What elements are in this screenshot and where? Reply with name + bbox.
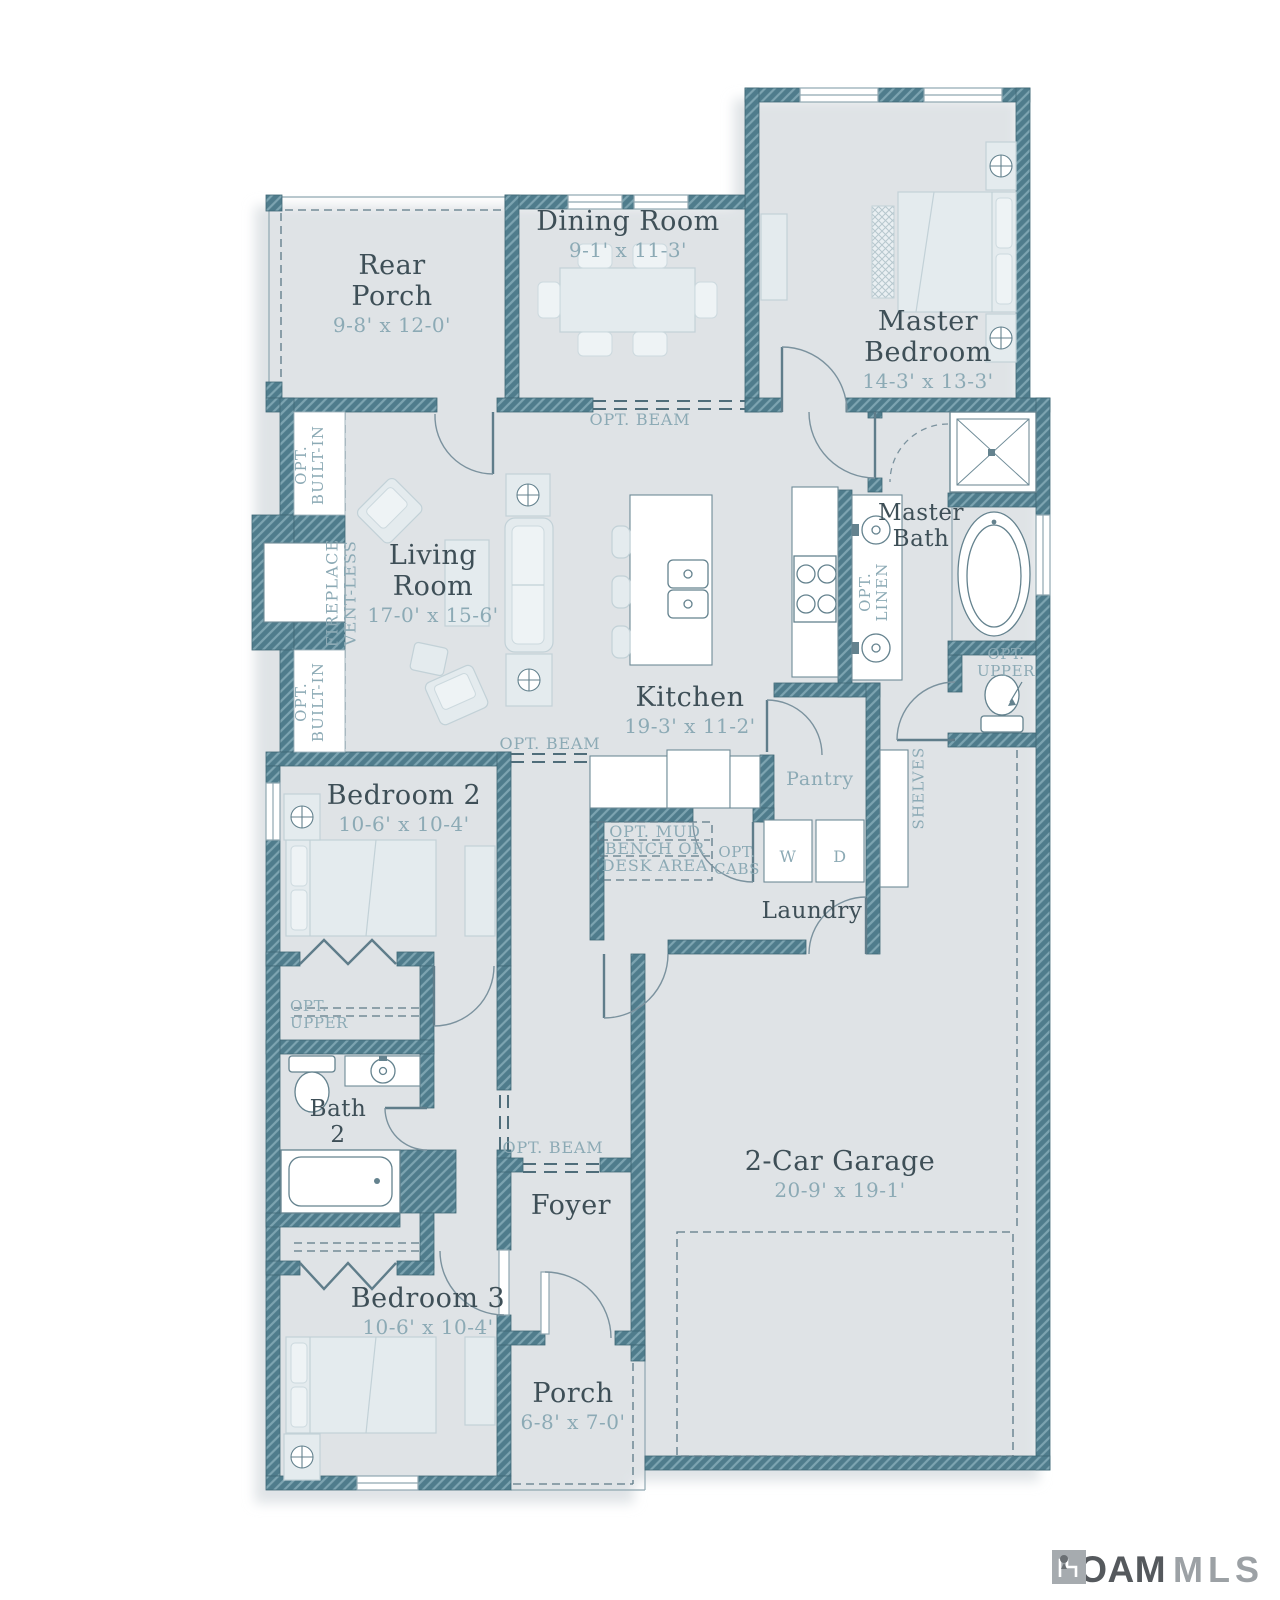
dryer-label: D [833, 848, 846, 866]
room-label-pantry: Pantry [786, 770, 854, 790]
dims-bedroom-2: 10-6' x 10-4' [327, 813, 481, 836]
annotation-opt-linen: OPT. LINEN [857, 562, 892, 621]
room-label-living-room: Living Room 17-0' x 15-6' [367, 540, 498, 627]
room-label-kitchen: Kitchen 19-3' x 11-2' [624, 682, 755, 738]
dims-master-bedroom: 14-3' x 13-3' [862, 370, 993, 393]
room-label-bedroom-3: Bedroom 3 10-6' x 10-4' [351, 1283, 505, 1339]
dims-garage: 20-9' x 19-1' [745, 1179, 935, 1202]
annotation-opt-upper-wc: OPT. UPPER [977, 646, 1035, 680]
room-label-bedroom-2: Bedroom 2 10-6' x 10-4' [327, 780, 481, 836]
annotation-fireplace: FIREPLACE VENT-LESS [324, 539, 361, 648]
annotation-opt-beam-dining: OPT. BEAM [590, 412, 691, 429]
room-label-bath-2: Bath 2 [310, 1096, 367, 1149]
room-label-rear-porch: Rear Porch 9-8' x 12-0' [333, 250, 451, 337]
annotation-opt-beam-foyer: OPT. BEAM [503, 1140, 604, 1157]
room-label-garage: 2-Car Garage 20-9' x 19-1' [745, 1146, 935, 1202]
annotation-opt-built-in-top: OPT. BUILT-IN [293, 425, 328, 505]
room-label-porch: Porch 6-8' x 7-0' [521, 1378, 626, 1434]
annotation-opt-upper-closet: OPT. UPPER [290, 998, 348, 1032]
logo-suffix: MLS [1173, 1549, 1264, 1591]
room-label-foyer: Foyer [531, 1190, 611, 1221]
dims-rear-porch: 9-8' x 12-0' [333, 314, 451, 337]
dims-porch: 6-8' x 7-0' [521, 1411, 626, 1434]
washer-label: W [779, 848, 796, 866]
dims-kitchen: 19-3' x 11-2' [624, 715, 755, 738]
room-label-master-bath: Master Bath [878, 500, 964, 553]
floor-plan-page: Rear Porch 9-8' x 12-0' Dining Room 9-1'… [0, 0, 1280, 1600]
roam-mls-logo: ROAM MLS [1051, 1549, 1264, 1591]
annotation-mud-bench: OPT. MUD BENCH OR DESK AREA [602, 824, 709, 874]
annotation-opt-cabs: OPT. CABS [714, 844, 760, 878]
room-label-dining-room: Dining Room 9-1' x 11-3' [536, 206, 720, 262]
roam-mls-icon [1051, 1549, 1087, 1585]
room-label-master-bedroom: Master Bedroom 14-3' x 13-3' [862, 306, 993, 393]
dims-bedroom-3: 10-6' x 10-4' [351, 1316, 505, 1339]
annotation-opt-built-in-bottom: OPT. BUILT-IN [293, 662, 328, 742]
room-label-laundry: Laundry [762, 898, 863, 924]
annotation-shelves: SHELVES [910, 747, 927, 830]
annotation-opt-beam-living: OPT. BEAM [500, 736, 601, 753]
dims-living-room: 17-0' x 15-6' [367, 604, 498, 627]
dims-dining-room: 9-1' x 11-3' [536, 239, 720, 262]
